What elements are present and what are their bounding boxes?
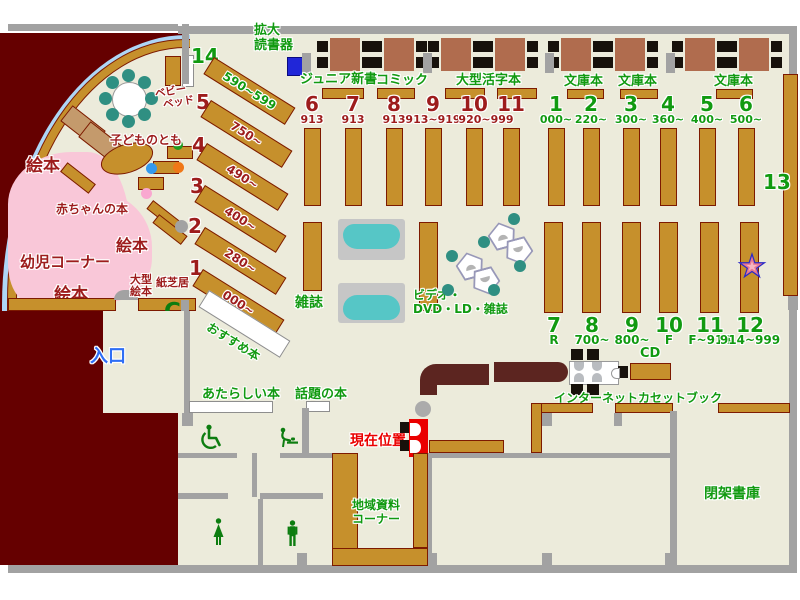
pillar: [545, 53, 554, 73]
cd-label: CD: [640, 347, 660, 362]
stack-range: 500~: [714, 114, 778, 125]
wheelchair-icon: [197, 424, 224, 456]
terminal-seat: [611, 368, 620, 379]
local-materials-shelf: [413, 453, 428, 548]
wall-stub: [665, 553, 675, 565]
book-stack: [503, 128, 520, 206]
chair-icon: [478, 236, 490, 248]
marker-block: [400, 440, 409, 451]
stack-range: 914~999: [718, 334, 782, 346]
chair-icon: [587, 349, 599, 360]
table-top: [330, 38, 360, 71]
wall-bottom: [8, 565, 797, 573]
table-top: [561, 38, 591, 71]
marker-seat: [410, 440, 421, 453]
current-location-label: 現在位置: [350, 430, 406, 450]
chair-icon: [482, 57, 493, 68]
chair-icon: [527, 57, 538, 68]
pillar: [666, 53, 675, 73]
wall: [670, 411, 677, 567]
chair-icon: [482, 41, 493, 52]
chair-icon: [647, 57, 658, 68]
blue-dot-seat: [146, 163, 157, 174]
wall: [260, 493, 323, 499]
pillar: [302, 53, 311, 73]
chair-icon: [488, 284, 500, 296]
reading-table: [482, 38, 538, 71]
wall: [252, 453, 257, 497]
chair-icon: [446, 250, 458, 262]
book-stack: [304, 128, 321, 206]
ehon-label-b: 絵本: [116, 232, 148, 256]
wall: [178, 493, 228, 499]
stack-number: 11: [486, 94, 536, 114]
book-stack: [582, 222, 601, 313]
entrance-label: 入口: [90, 342, 126, 368]
exterior-area-bottom-left: [0, 413, 178, 565]
section-label-bunko-1: 文庫本: [564, 75, 603, 90]
ehon-label-a: 絵本: [26, 151, 60, 176]
book-stack: [623, 128, 640, 206]
carrel-seat-mark: [513, 246, 524, 253]
reading-table: [602, 38, 658, 71]
chair-icon: [771, 57, 782, 68]
reading-table: [548, 38, 604, 71]
pink-dot-seat: [141, 188, 152, 199]
wall-stub: [788, 296, 798, 310]
shelf: [531, 403, 542, 453]
stack-number: 6: [721, 94, 771, 114]
table-top: [615, 38, 645, 71]
chair-icon: [122, 115, 135, 128]
chair-icon: [726, 41, 737, 52]
topic-books-shelf: [306, 401, 330, 412]
wall-stub: [182, 413, 193, 426]
marker-block: [400, 422, 409, 433]
wall: [427, 453, 677, 458]
chair-icon: [442, 284, 454, 296]
computer-icon: [574, 373, 584, 382]
new-books-shelf: [189, 401, 273, 413]
picture-book-shelf-bottom: [8, 298, 116, 311]
magazine-stack: [303, 222, 322, 291]
chair-icon: [138, 108, 151, 121]
chair-icon: [138, 76, 151, 89]
wall: [302, 408, 309, 455]
chair-icon: [647, 41, 658, 52]
library-floor-map: ベビーベッド 絵本 絵本 絵本 幼児コーナー 赤ちゃんの本 子どものとも 大型絵…: [0, 0, 800, 600]
section-label-bunko-2: 文庫本: [618, 75, 657, 90]
man-icon: [285, 520, 300, 554]
pillar: [423, 53, 432, 73]
chair-icon: [428, 41, 439, 52]
table-top: [441, 38, 471, 71]
carrel-seat-mark: [465, 264, 476, 271]
book-stack: [548, 128, 565, 206]
baby-books-label: 赤ちゃんの本: [56, 200, 128, 217]
service-counter: [494, 362, 568, 382]
wall-stub: [297, 553, 307, 565]
infant-corner-label: 幼児コーナー: [20, 251, 110, 272]
table-top: [495, 38, 525, 71]
section-label-bunko-3: 文庫本: [714, 75, 753, 90]
book-stack: [425, 128, 442, 206]
wall-stub: [427, 553, 437, 565]
chair-icon: [106, 108, 119, 121]
closed-stacks-label: 閉架書庫: [704, 483, 760, 503]
chair-icon: [771, 41, 782, 52]
chair-icon: [371, 57, 382, 68]
chair-icon: [548, 41, 559, 52]
service-counter: [420, 381, 437, 395]
shelf: [615, 403, 673, 413]
stack-number-13: 13: [763, 172, 791, 192]
large-picture-book-label: 大型絵本: [130, 274, 152, 298]
magnifier-reader-label: 拡大読書器: [254, 24, 293, 54]
chair-icon: [508, 213, 520, 225]
baby-bed-shelf: [165, 56, 181, 86]
reader-l1: 拡大: [254, 23, 280, 38]
chair-icon: [106, 76, 119, 89]
cd-shelf: [630, 363, 671, 380]
chair-icon: [416, 41, 427, 52]
magazine-label: 雑誌: [295, 292, 323, 312]
chair-icon: [317, 57, 328, 68]
step-shelf: [138, 177, 164, 190]
table-top: [384, 38, 414, 71]
local-materials-shelf: [332, 548, 428, 566]
shelf: [718, 403, 790, 413]
book-stack: [738, 128, 755, 206]
pillar: [415, 401, 431, 417]
book-stack: [660, 128, 677, 206]
marker-seat: [410, 423, 421, 436]
local-materials-label-l2: コーナー: [346, 510, 406, 527]
book-stack: [622, 222, 641, 313]
reading-table: [371, 38, 427, 71]
wall-top-left: [8, 24, 178, 31]
reader-l2: 読書器: [254, 38, 293, 53]
wall-stub: [542, 413, 552, 426]
book-stack: [699, 128, 716, 206]
exterior-area-left: [0, 311, 103, 413]
chair-icon: [317, 41, 328, 52]
table-top: [685, 38, 715, 71]
magazine-rack: [343, 224, 400, 249]
chair-icon: [602, 57, 613, 68]
chair-icon: [122, 69, 135, 82]
chair-icon: [371, 41, 382, 52]
book-stack: [466, 128, 483, 206]
book-stack: [700, 222, 719, 313]
orange-dot-seat: [173, 162, 184, 173]
video-l2: DVD・LD・雑誌: [413, 302, 508, 316]
reading-table: [317, 38, 373, 71]
magazine-rack: [343, 295, 400, 320]
section-label-junior: ジュニア新書: [300, 73, 377, 88]
woman-icon: [211, 518, 226, 552]
shelf: [429, 440, 504, 453]
section-label-large-print: 大型活字本: [456, 74, 521, 89]
kamishibai-label: 紙芝居: [156, 274, 189, 290]
chair-icon: [726, 57, 737, 68]
stack-number: 12: [725, 315, 775, 335]
section-label-comic: コミック: [376, 74, 428, 89]
chair-icon: [514, 260, 526, 272]
reading-table: [672, 38, 728, 71]
table-top: [739, 38, 769, 71]
wall-stub: [542, 553, 552, 565]
chair-icon: [571, 349, 583, 360]
book-stack: [659, 222, 678, 313]
kodomo-no-tomo-label: 子どものとも: [110, 131, 182, 148]
wall: [258, 499, 263, 565]
book-stack: [386, 128, 403, 206]
book-stack: [345, 128, 362, 206]
reading-table: [726, 38, 782, 71]
carrel-seat-mark: [497, 234, 508, 241]
book-stack: [544, 222, 563, 313]
wall-stub: [614, 413, 622, 426]
baby-changing-icon: [278, 427, 299, 457]
carrel-seat-mark: [480, 276, 491, 283]
chair-icon: [99, 92, 112, 105]
oogata-l2: 絵本: [130, 285, 152, 298]
chair-icon: [672, 41, 683, 52]
reading-table: [428, 38, 484, 71]
computer-icon: [592, 373, 602, 382]
chair-icon: [602, 41, 613, 52]
chair-icon: [527, 41, 538, 52]
book-stack: [583, 128, 600, 206]
